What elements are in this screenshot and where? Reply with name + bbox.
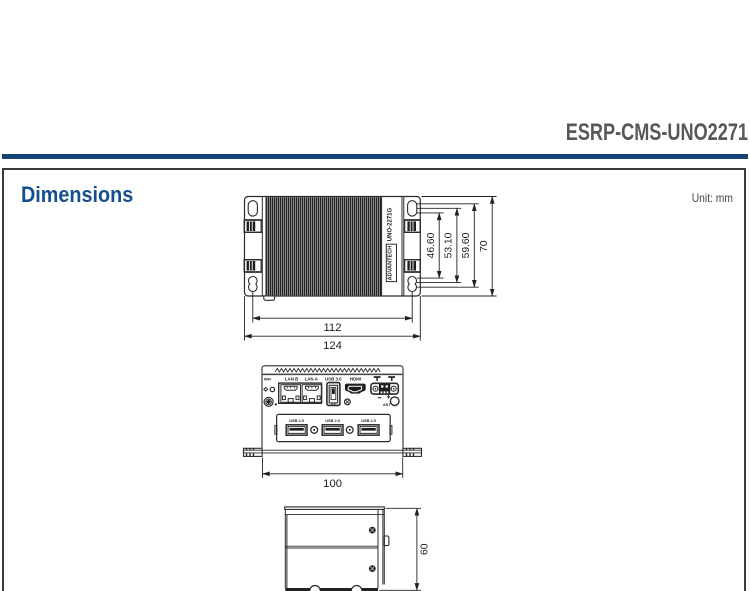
svg-text:LAN B: LAN B <box>285 376 298 381</box>
svg-text:53.10: 53.10 <box>444 232 455 258</box>
svg-text:USB 2.0: USB 2.0 <box>289 418 304 423</box>
svg-text:USB 3.0: USB 3.0 <box>325 376 342 381</box>
svg-text:70: 70 <box>479 240 490 252</box>
svg-text:100: 100 <box>323 478 342 490</box>
svg-text:ANT: ANT <box>383 403 391 407</box>
svg-text:LAN A: LAN A <box>305 376 319 381</box>
svg-text:112: 112 <box>323 322 341 334</box>
svg-text:46.60: 46.60 <box>426 232 437 258</box>
svg-text:124: 124 <box>323 340 342 352</box>
svg-text:59.60: 59.60 <box>461 232 472 258</box>
svg-text:ADVANTECH: ADVANTECH <box>388 246 394 281</box>
svg-text:UNO-2271G: UNO-2271G <box>388 208 394 242</box>
svg-text:USB 2.0: USB 2.0 <box>325 418 340 423</box>
svg-text:60: 60 <box>419 543 430 555</box>
svg-text:HDMI: HDMI <box>350 376 361 381</box>
svg-text:USB 2.0: USB 2.0 <box>361 418 376 423</box>
svg-text:WIFI: WIFI <box>264 378 271 382</box>
